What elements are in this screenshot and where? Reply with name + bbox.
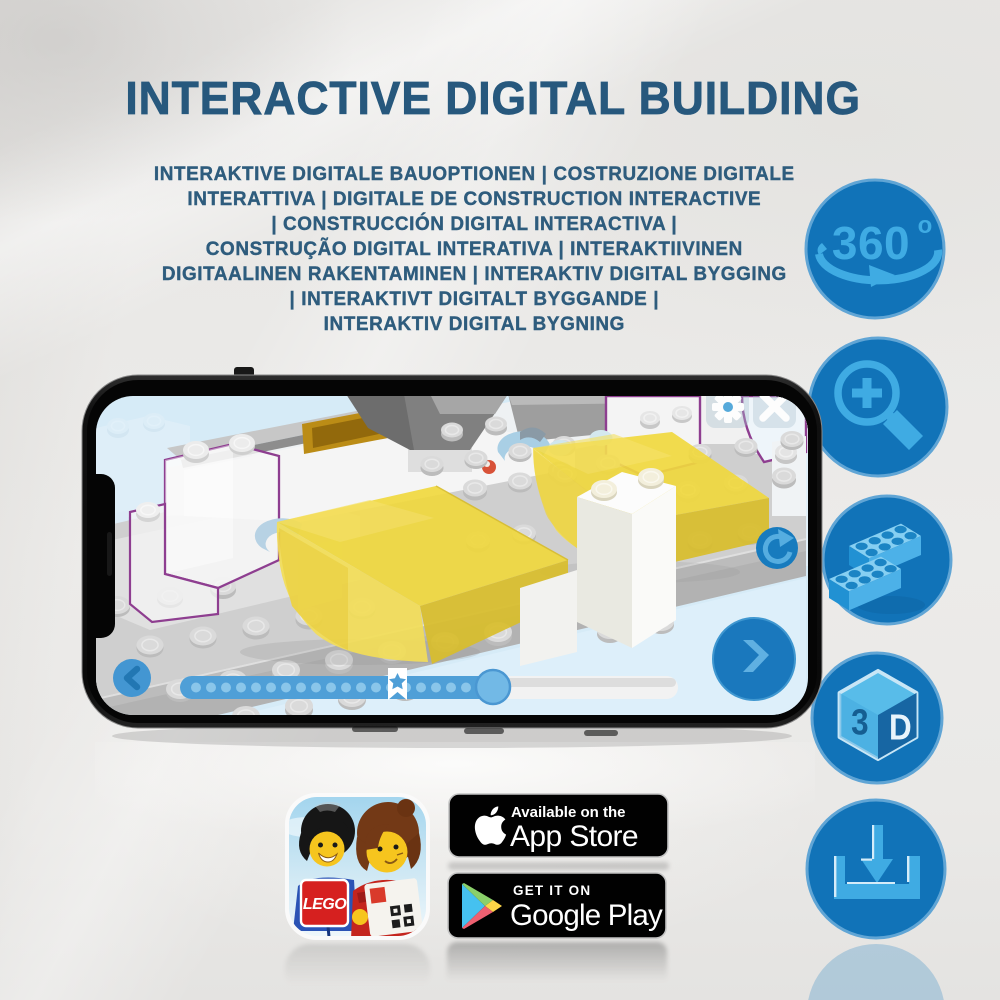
svg-text:Available on the: Available on the	[511, 804, 625, 821]
svg-text:GET IT ON: GET IT ON	[513, 883, 591, 898]
svg-text:LEGO: LEGO	[303, 896, 347, 913]
svg-text:App Store: App Store	[510, 820, 638, 853]
svg-text:o: o	[918, 212, 933, 239]
svg-text:Google Play: Google Play	[510, 899, 663, 932]
svg-text:360: 360	[832, 217, 910, 269]
svg-text:D: D	[889, 709, 912, 748]
